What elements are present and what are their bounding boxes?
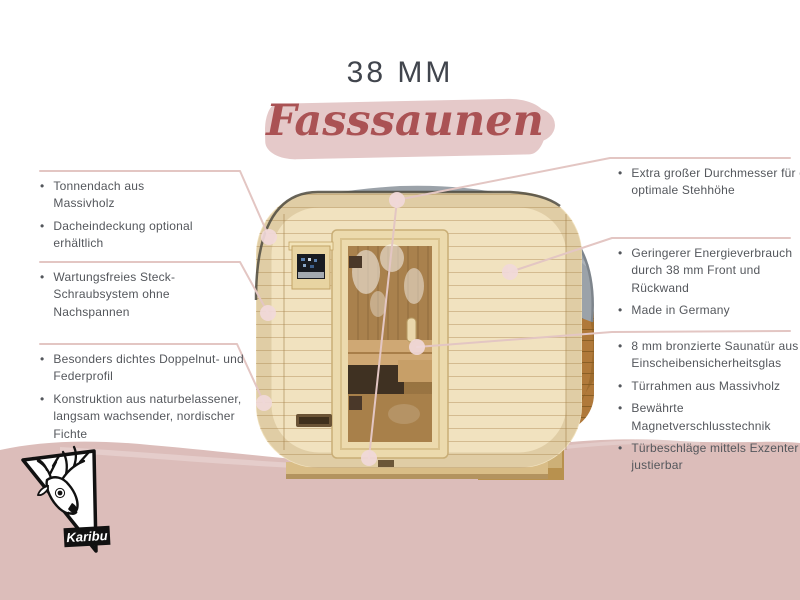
door-hinge-top [349,256,362,268]
door-hinge-bottom [349,396,362,410]
door-handle [407,318,416,342]
connector-roof [40,171,269,237]
sauna-vent [296,414,332,427]
logo-brand-text: Karibu [66,528,108,545]
infographic-page: Karibu 38 MM Fasssaunen • Tonnendach aus… [0,0,800,600]
connector-profile [40,344,264,403]
base-notch [378,460,394,467]
sauna-illustration [256,186,594,480]
sauna-control-panel [289,242,333,289]
connector-wall-system [40,262,268,313]
scene-graphic: Karibu [0,0,800,600]
